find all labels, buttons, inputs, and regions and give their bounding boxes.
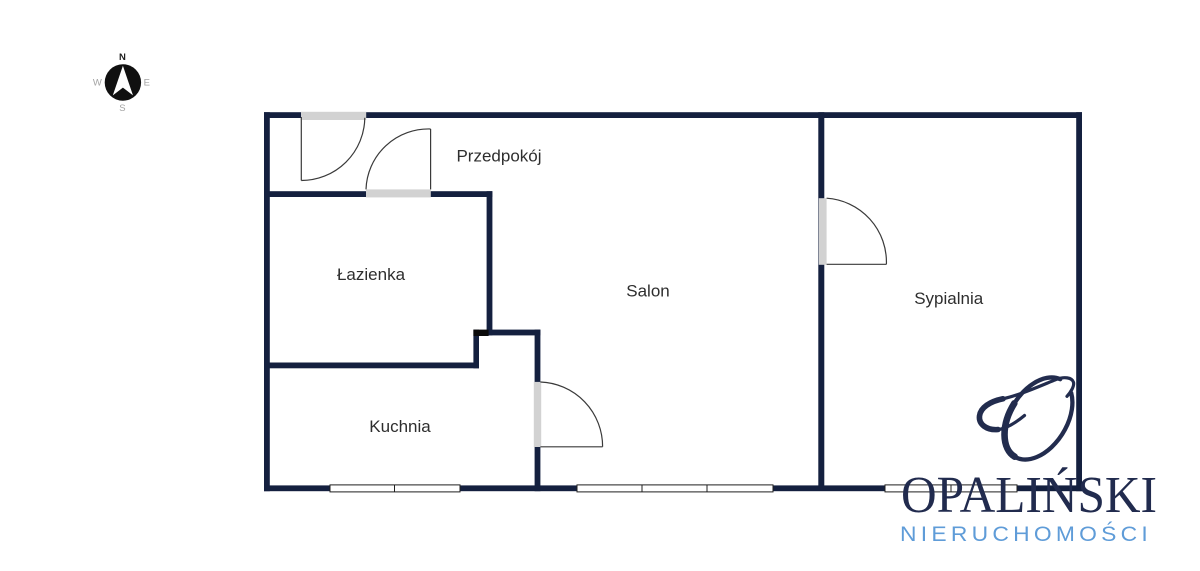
svg-text:Sypialnia: Sypialnia — [914, 289, 984, 308]
svg-text:Salon: Salon — [626, 281, 669, 300]
svg-text:S: S — [119, 103, 125, 114]
svg-text:Łazienka: Łazienka — [337, 265, 406, 284]
svg-text:NIERUCHOMOŚCI: NIERUCHOMOŚCI — [900, 521, 1152, 546]
svg-text:Przedpokój: Przedpokój — [456, 147, 541, 166]
svg-text:Kuchnia: Kuchnia — [369, 417, 431, 436]
svg-text:W: W — [93, 78, 102, 89]
svg-text:E: E — [144, 78, 150, 89]
svg-text:OPALIŃSKI: OPALIŃSKI — [901, 466, 1157, 524]
svg-text:N: N — [119, 52, 126, 63]
